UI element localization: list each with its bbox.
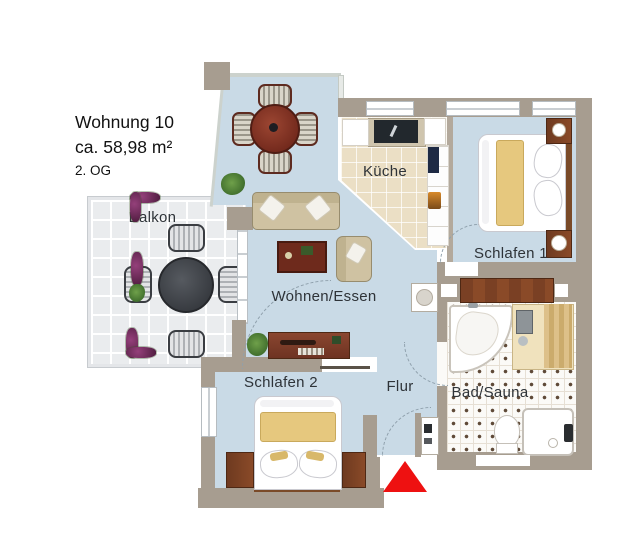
room-label-schlafen1: Schlafen 1 xyxy=(455,245,567,262)
apartment-area: ca. 58,98 m² xyxy=(75,137,172,158)
bed2-blanket xyxy=(260,412,336,442)
room-label-bad-sauna: Bad/Sauna xyxy=(438,384,542,401)
flower-box xyxy=(131,252,143,286)
glass-front-top xyxy=(224,73,341,77)
desk-item xyxy=(280,340,316,345)
window xyxy=(446,101,520,116)
balcony-door-glass xyxy=(237,229,248,324)
bath-bottom-niche xyxy=(476,455,530,466)
window xyxy=(366,101,414,116)
floor-plan: Wohnung 10 ca. 58,98 m² 2. OG Balkon xyxy=(0,0,640,556)
balcony-chair xyxy=(168,224,205,252)
flower-box xyxy=(126,347,156,358)
kitchen-basket xyxy=(428,192,441,209)
wall-balcony-corner xyxy=(227,207,253,230)
room-label-wohnen-essen: Wohnen/Essen xyxy=(268,288,380,305)
wall-bath-left-top xyxy=(437,300,447,342)
coffee-table-decor xyxy=(285,252,292,259)
apartment-floor: 2. OG xyxy=(75,163,111,178)
bed1-lamp xyxy=(552,123,566,137)
entry-fixture xyxy=(421,417,439,455)
room-label-flur: Flur xyxy=(374,378,426,395)
wall-right xyxy=(576,98,592,470)
desk-plant xyxy=(332,336,341,344)
bath-fixture xyxy=(564,424,573,442)
bed2-nightstand xyxy=(226,452,254,488)
sauna-bucket xyxy=(518,336,528,346)
entrance-triangle-icon xyxy=(383,461,427,492)
kitchen-fridge xyxy=(428,147,439,173)
niche-white xyxy=(555,284,568,297)
balcony-table xyxy=(158,257,214,313)
hall-fixture-basin xyxy=(416,289,433,306)
sauna-heater xyxy=(516,310,533,334)
window-bedroom2 xyxy=(201,387,217,437)
kitchen-appliance xyxy=(424,118,446,145)
wall-pillar xyxy=(204,62,230,90)
flower-box xyxy=(130,192,141,222)
niche-white xyxy=(441,284,457,297)
toilet-tank xyxy=(496,443,518,454)
bed2-footfold xyxy=(260,400,334,407)
wall-bedroom1-bottom xyxy=(478,262,592,276)
entry-fixture-detail xyxy=(424,424,432,433)
room-label-kueche: Küche xyxy=(350,163,420,180)
room-label-schlafen2: Schlafen 2 xyxy=(225,374,337,391)
kitchen-appliance xyxy=(342,119,369,146)
coffee-table-plant xyxy=(301,246,313,255)
shower-drain xyxy=(548,438,558,448)
kitchen-sink xyxy=(374,120,418,143)
wall-bedroom1-jamb xyxy=(437,262,445,276)
dining-table-hub xyxy=(269,123,278,132)
entry-fixture-detail xyxy=(424,438,432,444)
bed1-footfold xyxy=(482,140,489,224)
bed1-blanket xyxy=(496,140,524,226)
niche-dresser xyxy=(460,278,554,303)
window xyxy=(532,101,576,116)
sauna-bench xyxy=(544,304,572,368)
bathtub-faucet xyxy=(468,303,478,308)
apartment-name: Wohnung 10 xyxy=(75,112,174,133)
bed2-nightstand xyxy=(342,452,366,488)
desk-keyboard xyxy=(298,348,324,355)
balcony-chair xyxy=(168,330,205,358)
